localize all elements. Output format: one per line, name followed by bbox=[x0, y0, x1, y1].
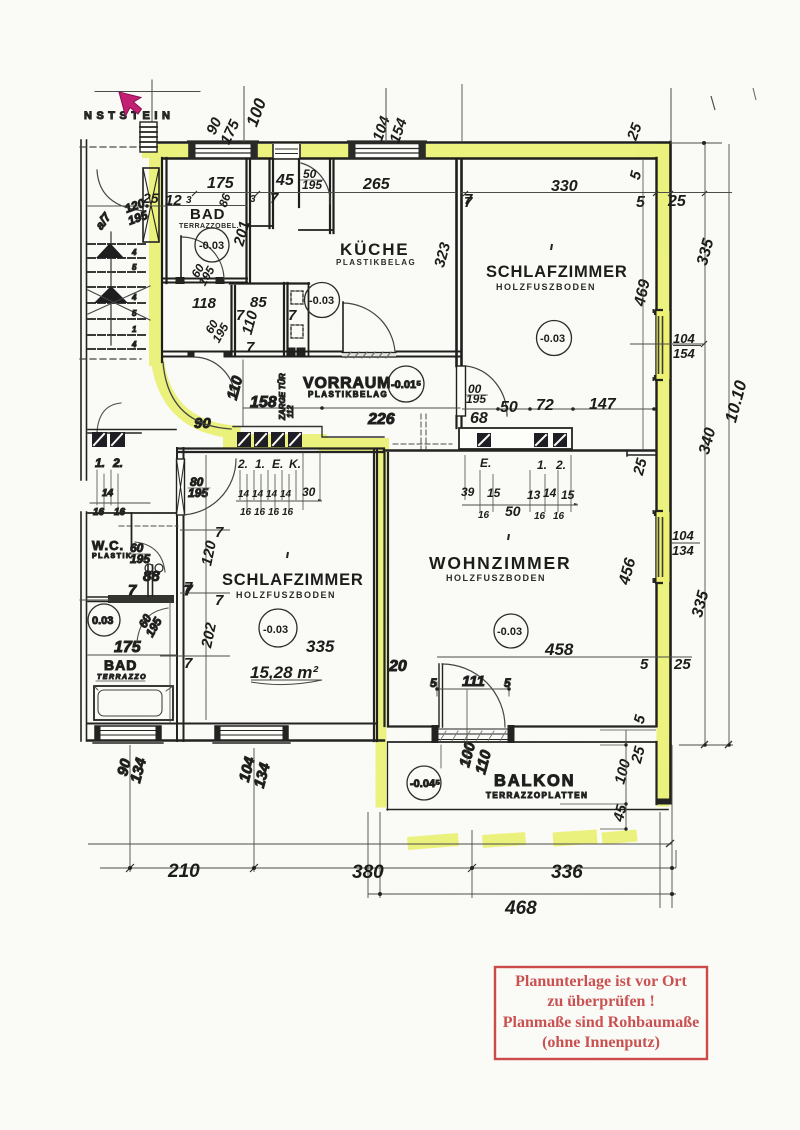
svg-text:335: 335 bbox=[306, 637, 335, 656]
svg-text:-0.03: -0.03 bbox=[497, 626, 522, 638]
svg-text:45: 45 bbox=[275, 172, 295, 189]
svg-text:50: 50 bbox=[505, 503, 521, 519]
svg-text:7: 7 bbox=[215, 592, 224, 609]
svg-text:104: 104 bbox=[672, 528, 694, 543]
svg-text:72: 72 bbox=[536, 397, 554, 414]
svg-text:112: 112 bbox=[286, 405, 295, 418]
svg-text:Planunterlage ist vor Ort: Planunterlage ist vor Ort bbox=[515, 973, 687, 990]
svg-text:13: 13 bbox=[527, 488, 541, 502]
svg-text:175: 175 bbox=[114, 639, 142, 656]
svg-text:39: 39 bbox=[461, 485, 475, 499]
svg-text:7: 7 bbox=[184, 582, 193, 599]
svg-text:14: 14 bbox=[543, 486, 557, 500]
svg-text:15: 15 bbox=[561, 488, 575, 502]
svg-text:195: 195 bbox=[466, 392, 486, 406]
svg-text:Planmaße sind Rohbaumaße: Planmaße sind Rohbaumaße bbox=[503, 1014, 700, 1031]
svg-text:210: 210 bbox=[167, 861, 200, 882]
svg-text:3: 3 bbox=[250, 194, 256, 205]
svg-text:15: 15 bbox=[487, 486, 501, 500]
svg-text:265: 265 bbox=[362, 176, 391, 193]
svg-text:4: 4 bbox=[131, 248, 137, 257]
svg-text:7: 7 bbox=[236, 307, 245, 324]
svg-text:-0.03: -0.03 bbox=[263, 624, 288, 636]
svg-text:zu überprüfen !: zu überprüfen ! bbox=[547, 993, 655, 1010]
svg-text:2.: 2. bbox=[237, 457, 248, 471]
svg-text:16: 16 bbox=[282, 507, 294, 518]
svg-text:(ohne Innenputz): (ohne Innenputz) bbox=[542, 1034, 660, 1051]
svg-text:16: 16 bbox=[478, 510, 490, 521]
svg-text:14: 14 bbox=[102, 488, 114, 499]
svg-text:468: 468 bbox=[504, 898, 537, 919]
svg-text:-0.01⁵: -0.01⁵ bbox=[391, 379, 421, 391]
svg-text:14: 14 bbox=[280, 489, 292, 500]
svg-text:111: 111 bbox=[462, 673, 485, 690]
svg-text:2.: 2. bbox=[555, 458, 566, 472]
svg-text:E.: E. bbox=[272, 457, 283, 471]
svg-text:-0.04⁵: -0.04⁵ bbox=[410, 778, 440, 790]
svg-text:5: 5 bbox=[636, 194, 646, 211]
svg-text:5: 5 bbox=[640, 656, 649, 673]
svg-text:BAD: BAD bbox=[190, 206, 226, 223]
svg-text:5: 5 bbox=[430, 676, 437, 690]
svg-text:226: 226 bbox=[367, 411, 395, 428]
svg-text:68: 68 bbox=[470, 410, 488, 427]
svg-text:25: 25 bbox=[667, 193, 687, 210]
svg-text:1.: 1. bbox=[255, 457, 265, 471]
svg-text:7: 7 bbox=[288, 307, 297, 324]
svg-text:TERRAZZOBEL.: TERRAZZOBEL. bbox=[179, 223, 239, 230]
svg-text:380: 380 bbox=[352, 862, 384, 883]
svg-text:118: 118 bbox=[192, 295, 217, 312]
svg-text:PLASTIK: PLASTIK bbox=[92, 553, 132, 560]
svg-text:TERRAZZO: TERRAZZO bbox=[97, 674, 147, 681]
svg-text:20: 20 bbox=[388, 658, 407, 675]
svg-text:E.: E. bbox=[480, 456, 491, 470]
svg-text:175: 175 bbox=[207, 175, 235, 192]
svg-text:7: 7 bbox=[464, 194, 473, 211]
svg-text:336: 336 bbox=[551, 862, 583, 883]
svg-text:HOLZFUSZBODEN: HOLZFUSZBODEN bbox=[446, 573, 546, 583]
svg-text:7: 7 bbox=[246, 339, 255, 356]
svg-text:14: 14 bbox=[238, 489, 250, 500]
svg-text:147: 147 bbox=[589, 396, 617, 413]
svg-text:50: 50 bbox=[500, 399, 518, 416]
svg-text:15,28 m²: 15,28 m² bbox=[250, 663, 319, 682]
svg-text:4: 4 bbox=[131, 293, 137, 302]
svg-text:HOLZFUSZBODEN: HOLZFUSZBODEN bbox=[236, 590, 336, 600]
svg-text:SCHLAFZIMMER: SCHLAFZIMMER bbox=[486, 263, 628, 281]
svg-text:5: 5 bbox=[132, 263, 137, 272]
svg-text:-0.03: -0.03 bbox=[540, 333, 565, 345]
svg-text:7: 7 bbox=[184, 655, 193, 672]
svg-text:1: 1 bbox=[132, 325, 137, 334]
svg-text:5: 5 bbox=[504, 676, 511, 690]
svg-text:W.C.: W.C. bbox=[92, 538, 124, 553]
svg-text:16: 16 bbox=[254, 507, 266, 518]
svg-text:K.: K. bbox=[289, 457, 301, 471]
svg-text:4: 4 bbox=[131, 340, 137, 349]
svg-text:16: 16 bbox=[240, 507, 252, 518]
svg-text:14: 14 bbox=[266, 489, 278, 500]
svg-text:-0.03: -0.03 bbox=[199, 240, 224, 252]
svg-text:134: 134 bbox=[672, 543, 694, 558]
svg-text:KÜCHE: KÜCHE bbox=[340, 240, 409, 259]
svg-text:1.: 1. bbox=[537, 458, 547, 472]
svg-text:BAD: BAD bbox=[104, 657, 137, 673]
svg-text:14: 14 bbox=[252, 489, 264, 500]
svg-text:NSTSTEIN: NSTSTEIN bbox=[84, 110, 174, 122]
svg-text:16: 16 bbox=[268, 507, 280, 518]
svg-text:3: 3 bbox=[186, 195, 192, 206]
svg-text:WOHNZIMMER: WOHNZIMMER bbox=[429, 553, 571, 573]
svg-text:-0.03: -0.03 bbox=[309, 295, 334, 307]
svg-text:PLASTIKBELAG: PLASTIKBELAG bbox=[336, 258, 416, 267]
svg-text:16: 16 bbox=[553, 511, 565, 522]
svg-text:458: 458 bbox=[544, 640, 574, 659]
svg-text:154: 154 bbox=[673, 346, 695, 361]
svg-text:TERRAZZOPLATTEN: TERRAZZOPLATTEN bbox=[486, 791, 588, 800]
svg-text:7: 7 bbox=[128, 582, 137, 599]
svg-text:SCHLAFZIMMER: SCHLAFZIMMER bbox=[222, 571, 364, 589]
svg-text:16: 16 bbox=[534, 511, 546, 522]
svg-text:5: 5 bbox=[132, 309, 137, 318]
svg-text:BALKON: BALKON bbox=[494, 772, 575, 790]
svg-text:12: 12 bbox=[165, 192, 182, 209]
svg-text:25: 25 bbox=[673, 656, 691, 673]
svg-text:PLASTIKBELAG: PLASTIKBELAG bbox=[308, 390, 388, 399]
svg-text:HOLZFUSZBODEN: HOLZFUSZBODEN bbox=[496, 282, 596, 292]
svg-text:85: 85 bbox=[250, 294, 267, 311]
svg-text:30: 30 bbox=[302, 485, 316, 499]
svg-text:2.: 2. bbox=[112, 456, 123, 470]
svg-text:0.03: 0.03 bbox=[92, 615, 113, 627]
svg-text:7: 7 bbox=[215, 524, 224, 541]
svg-text:1.: 1. bbox=[95, 456, 105, 470]
